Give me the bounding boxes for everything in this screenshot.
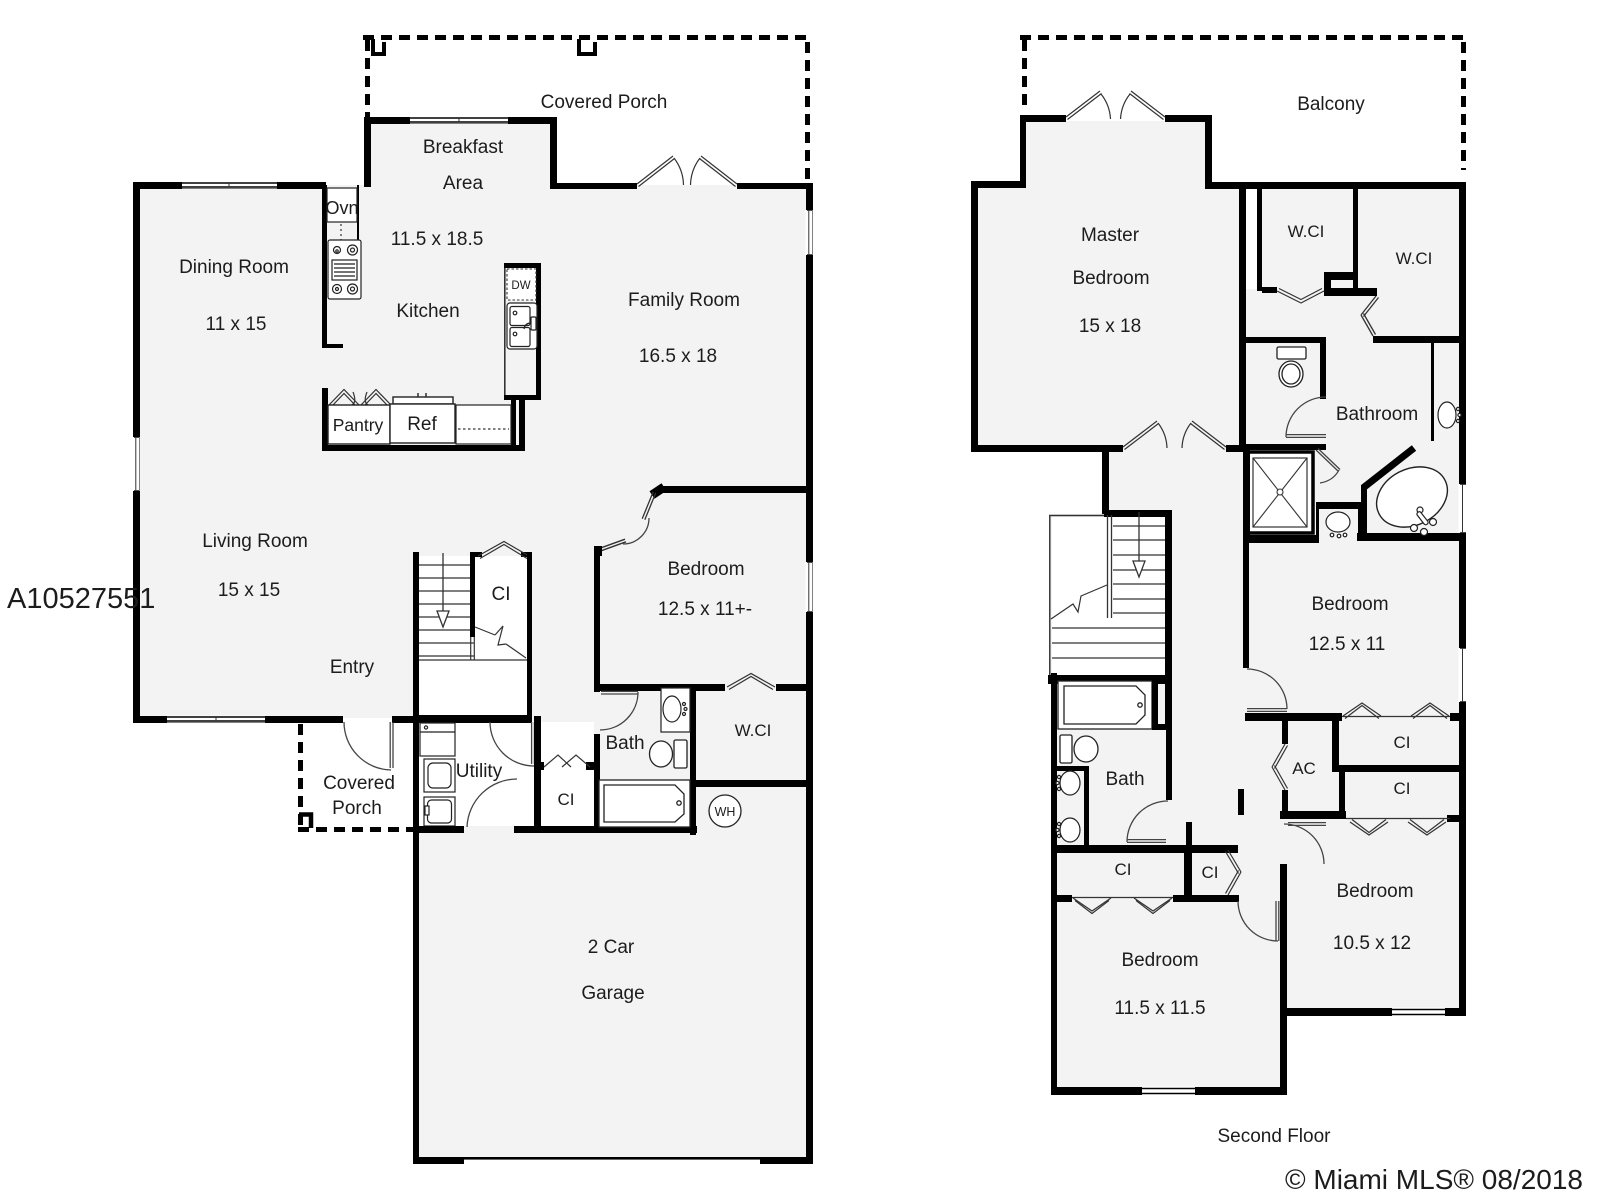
svg-text:10.5 x 12: 10.5 x 12 [1333, 933, 1411, 954]
svg-text:Family Room: Family Room [628, 290, 740, 311]
svg-text:Porch: Porch [332, 798, 382, 819]
svg-text:AC: AC [1292, 759, 1316, 778]
svg-text:11 x 15: 11 x 15 [206, 314, 267, 335]
svg-text:16.5 x 18: 16.5 x 18 [639, 346, 717, 367]
svg-text:Pantry: Pantry [333, 415, 384, 435]
svg-text:Bath: Bath [1105, 769, 1144, 790]
svg-text:Area: Area [443, 173, 484, 194]
svg-text:CI: CI [558, 790, 575, 809]
svg-text:Master: Master [1081, 225, 1140, 246]
svg-text:DW: DW [511, 280, 530, 292]
svg-text:© Miami MLS® 08/2018: © Miami MLS® 08/2018 [1285, 1164, 1583, 1195]
svg-text:CI: CI [1202, 863, 1219, 882]
svg-text:Bedroom: Bedroom [1336, 881, 1413, 902]
svg-text:Bedroom: Bedroom [1121, 950, 1198, 971]
svg-text:Balcony: Balcony [1297, 94, 1365, 115]
svg-text:Entry: Entry [330, 657, 375, 678]
svg-text:A10527551: A10527551 [7, 583, 155, 615]
svg-text:Living Room: Living Room [202, 531, 308, 552]
svg-text:15 x 15: 15 x 15 [218, 580, 280, 601]
svg-text:Kitchen: Kitchen [396, 301, 459, 322]
svg-text:15 x 18: 15 x 18 [1079, 316, 1141, 337]
svg-text:Dining Room: Dining Room [179, 257, 289, 278]
svg-text:W.CI: W.CI [735, 721, 772, 740]
svg-text:CI: CI [492, 584, 511, 605]
svg-text:CI: CI [1115, 860, 1132, 879]
svg-text:Bedroom: Bedroom [1072, 268, 1149, 289]
svg-text:WH: WH [715, 805, 736, 819]
svg-text:Breakfast: Breakfast [423, 137, 504, 158]
svg-text:11.5 x 18.5: 11.5 x 18.5 [391, 229, 484, 250]
svg-text:12.5 x 11+-: 12.5 x 11+- [658, 599, 752, 620]
svg-text:Second Floor: Second Floor [1217, 1126, 1331, 1147]
svg-text:2 Car: 2 Car [588, 937, 635, 958]
svg-text:12.5 x 11: 12.5 x 11 [1309, 634, 1386, 655]
svg-text:W.CI: W.CI [1396, 249, 1433, 268]
svg-text:Ref: Ref [407, 414, 437, 435]
svg-text:CI: CI [1394, 779, 1411, 798]
svg-text:W.CI: W.CI [1288, 222, 1325, 241]
svg-text:Garage: Garage [581, 983, 644, 1004]
svg-text:Bedroom: Bedroom [1311, 594, 1388, 615]
svg-text:Covered: Covered [323, 773, 395, 794]
svg-text:Bathroom: Bathroom [1336, 404, 1418, 425]
svg-text:Bedroom: Bedroom [667, 559, 744, 580]
svg-text:Ovn: Ovn [325, 198, 358, 218]
svg-text:Covered Porch: Covered Porch [541, 92, 668, 113]
svg-text:CI: CI [1394, 733, 1411, 752]
svg-text:Utility: Utility [456, 761, 503, 782]
svg-text:Bath: Bath [605, 733, 644, 754]
svg-text:11.5 x 11.5: 11.5 x 11.5 [1114, 998, 1205, 1019]
